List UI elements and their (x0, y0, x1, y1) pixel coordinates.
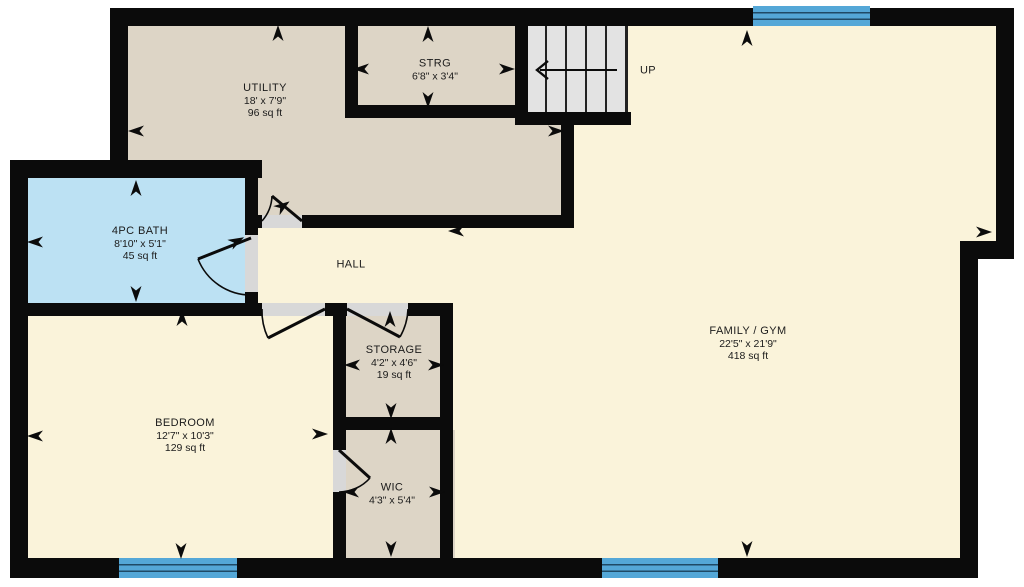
room-storage-dims: 4'2" x 4'6" (366, 357, 422, 369)
window-top-family-window (753, 6, 870, 26)
wall (440, 303, 453, 558)
bedroom-door-gap (262, 303, 325, 316)
room-bedroom-dims: 12'7" x 10'3" (155, 430, 215, 442)
stairs-up-label: UP (640, 65, 656, 78)
room-bedroom-name: BEDROOM (155, 417, 215, 430)
stair-tread-line (585, 26, 587, 112)
room-strg-name: STRG (412, 57, 458, 70)
room-wic-dims: 4'3" x 5'4" (369, 494, 415, 506)
wall (561, 112, 574, 228)
room-family-dims: 22'5" x 21'9" (709, 338, 786, 350)
utility-door-gap (262, 215, 302, 228)
wall (245, 292, 258, 303)
room-label-wic: WIC4'3" x 5'4" (369, 481, 415, 506)
storage-door-gap (347, 303, 408, 316)
wall (245, 178, 258, 235)
window-bottom-bedroom-window (119, 558, 237, 578)
room-hall-name: HALL (336, 259, 365, 272)
wall (960, 241, 978, 578)
room-label-bedroom: BEDROOM12'7" x 10'3"129 sq ft (155, 417, 215, 455)
room-label-hall: HALL (336, 259, 365, 272)
wall (10, 160, 262, 178)
wall (996, 8, 1014, 259)
room-label-bath: 4PC BATH8'10" x 5'1"45 sq ft (112, 225, 168, 263)
stair-edge-line (625, 26, 628, 112)
room-utility-dims: 18' x 7'9" (243, 95, 287, 107)
wall (10, 160, 28, 578)
wall (110, 8, 128, 178)
room-utility-area: 96 sq ft (243, 107, 287, 119)
room-utility-name: UTILITY (243, 82, 287, 95)
room-bath-area: 45 sq ft (112, 250, 168, 262)
room-storage-name: STORAGE (366, 344, 422, 357)
wall (110, 8, 1014, 26)
room-label-strg: STRG6'8" x 3'4" (412, 57, 458, 82)
wall (333, 417, 453, 430)
wall (302, 215, 574, 228)
window-bottom-family-window (602, 558, 718, 578)
floor-plan: UTILITY18' x 7'9"96 sq ftSTRG6'8" x 3'4"… (0, 0, 1024, 587)
room-strg-dims: 6'8" x 3'4" (412, 70, 458, 82)
wic-door-gap (333, 450, 346, 492)
room-bath-name: 4PC BATH (112, 225, 168, 238)
room-bedroom-area: 129 sq ft (155, 442, 215, 454)
room-label-storage: STORAGE4'2" x 4'6"19 sq ft (366, 344, 422, 382)
wall (345, 105, 528, 118)
wall (515, 26, 528, 125)
room-storage-area: 19 sq ft (366, 369, 422, 381)
room-family-area: 418 sq ft (709, 350, 786, 362)
room-bath-dims: 8'10" x 5'1" (112, 238, 168, 250)
room-family-name: FAMILY / GYM (709, 325, 786, 338)
stair-tread-line (605, 26, 607, 112)
stair-tread-line (545, 26, 547, 112)
room-wic-name: WIC (369, 481, 415, 494)
room-label-family: FAMILY / GYM22'5" x 21'9"418 sq ft (709, 325, 786, 363)
wall (10, 303, 262, 316)
room-label-utility: UTILITY18' x 7'9"96 sq ft (243, 82, 287, 120)
stairs-up-text: UP (640, 65, 656, 78)
stairs-floor (521, 26, 627, 112)
bath-door-gap (245, 235, 258, 292)
wall (333, 492, 346, 558)
stair-tread-line (565, 26, 567, 112)
